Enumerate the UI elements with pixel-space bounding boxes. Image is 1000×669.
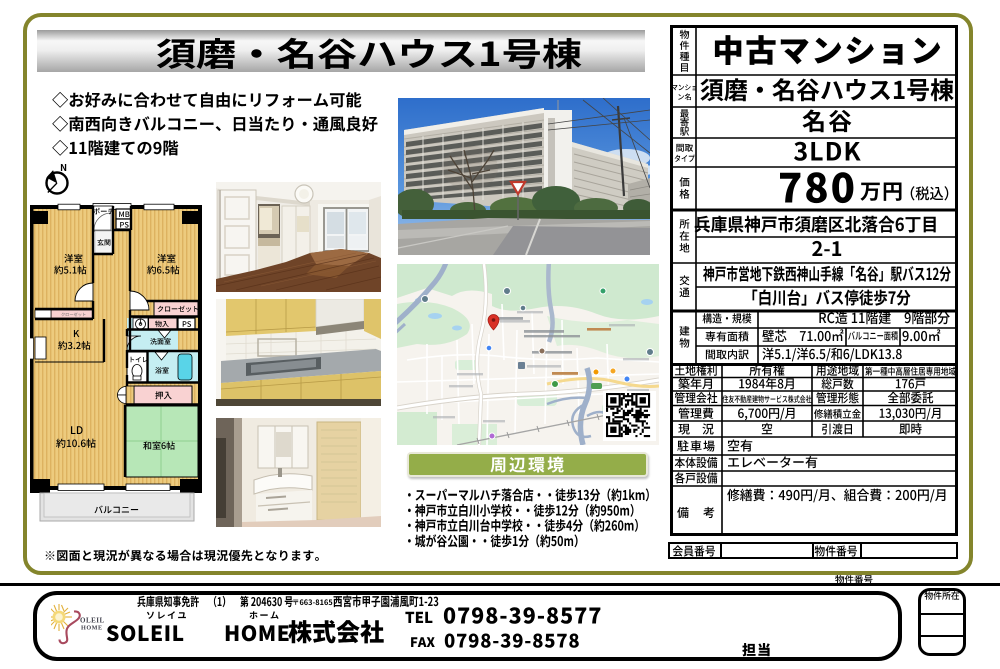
svg-text:OLEIL: OLEIL	[80, 617, 105, 625]
svg-text:HOME: HOME	[81, 625, 103, 632]
